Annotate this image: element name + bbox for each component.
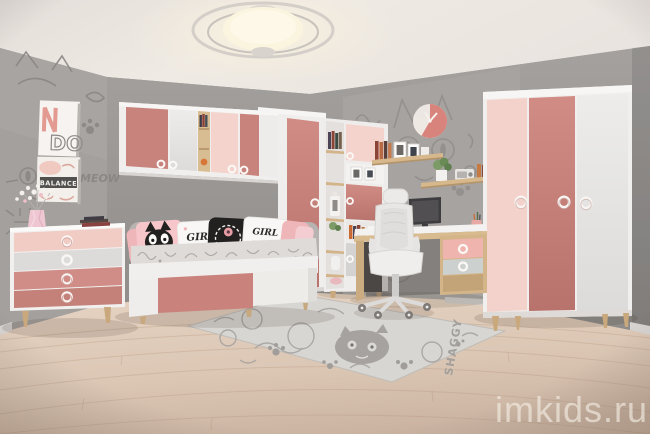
- vignette-overlay: [0, 0, 650, 434]
- kids-room-photo: MEOW DO BALANCE: [0, 0, 650, 434]
- watermark: imkids.ru: [495, 389, 648, 430]
- room-scene: MEOW DO BALANCE: [0, 0, 650, 434]
